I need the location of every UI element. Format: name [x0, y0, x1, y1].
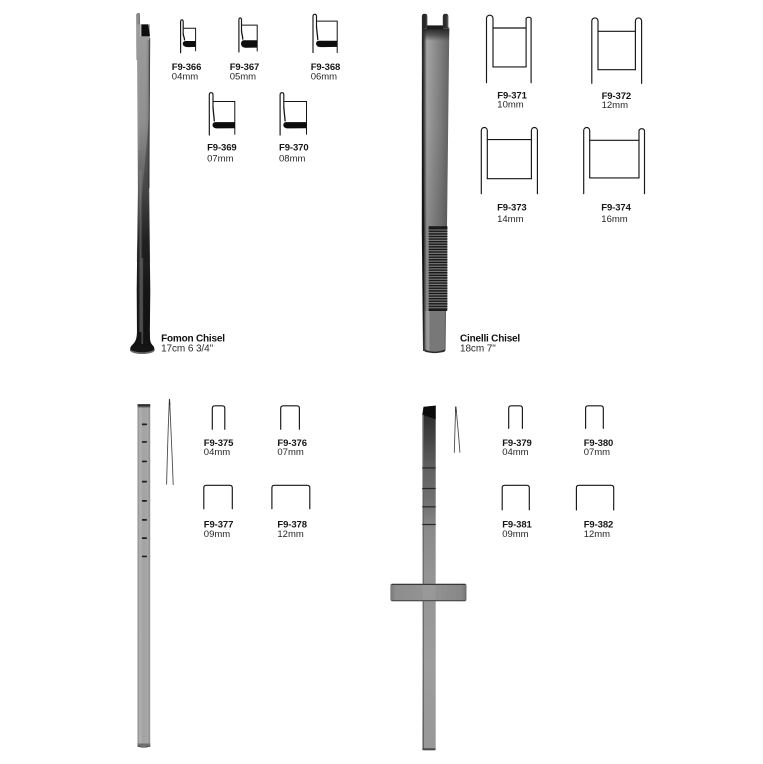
- svg-text:07mm: 07mm: [277, 447, 303, 458]
- svg-text:07mm: 07mm: [584, 447, 610, 458]
- svg-text:06mm: 06mm: [311, 72, 337, 83]
- svg-text:05mm: 05mm: [230, 72, 256, 83]
- svg-text:09mm: 09mm: [204, 529, 230, 540]
- svg-text:17cm 6 3/4": 17cm 6 3/4": [161, 344, 213, 355]
- svg-text:F9-369: F9-369: [207, 142, 237, 153]
- svg-text:16mm: 16mm: [601, 214, 627, 225]
- svg-text:04mm: 04mm: [172, 72, 198, 83]
- svg-text:04mm: 04mm: [204, 447, 230, 458]
- svg-text:09mm: 09mm: [502, 529, 528, 540]
- svg-text:10mm: 10mm: [497, 99, 523, 110]
- svg-text:F9-370: F9-370: [279, 142, 309, 153]
- svg-text:12mm: 12mm: [277, 529, 303, 540]
- svg-text:04mm: 04mm: [502, 447, 528, 458]
- svg-text:08mm: 08mm: [279, 154, 305, 165]
- svg-text:07mm: 07mm: [207, 154, 233, 165]
- svg-text:18cm 7": 18cm 7": [460, 344, 496, 355]
- svg-text:F9-374: F9-374: [601, 202, 631, 213]
- svg-text:12mm: 12mm: [602, 100, 628, 111]
- svg-text:12mm: 12mm: [584, 529, 610, 540]
- svg-text:14mm: 14mm: [497, 214, 523, 225]
- svg-text:F9-373: F9-373: [497, 202, 527, 213]
